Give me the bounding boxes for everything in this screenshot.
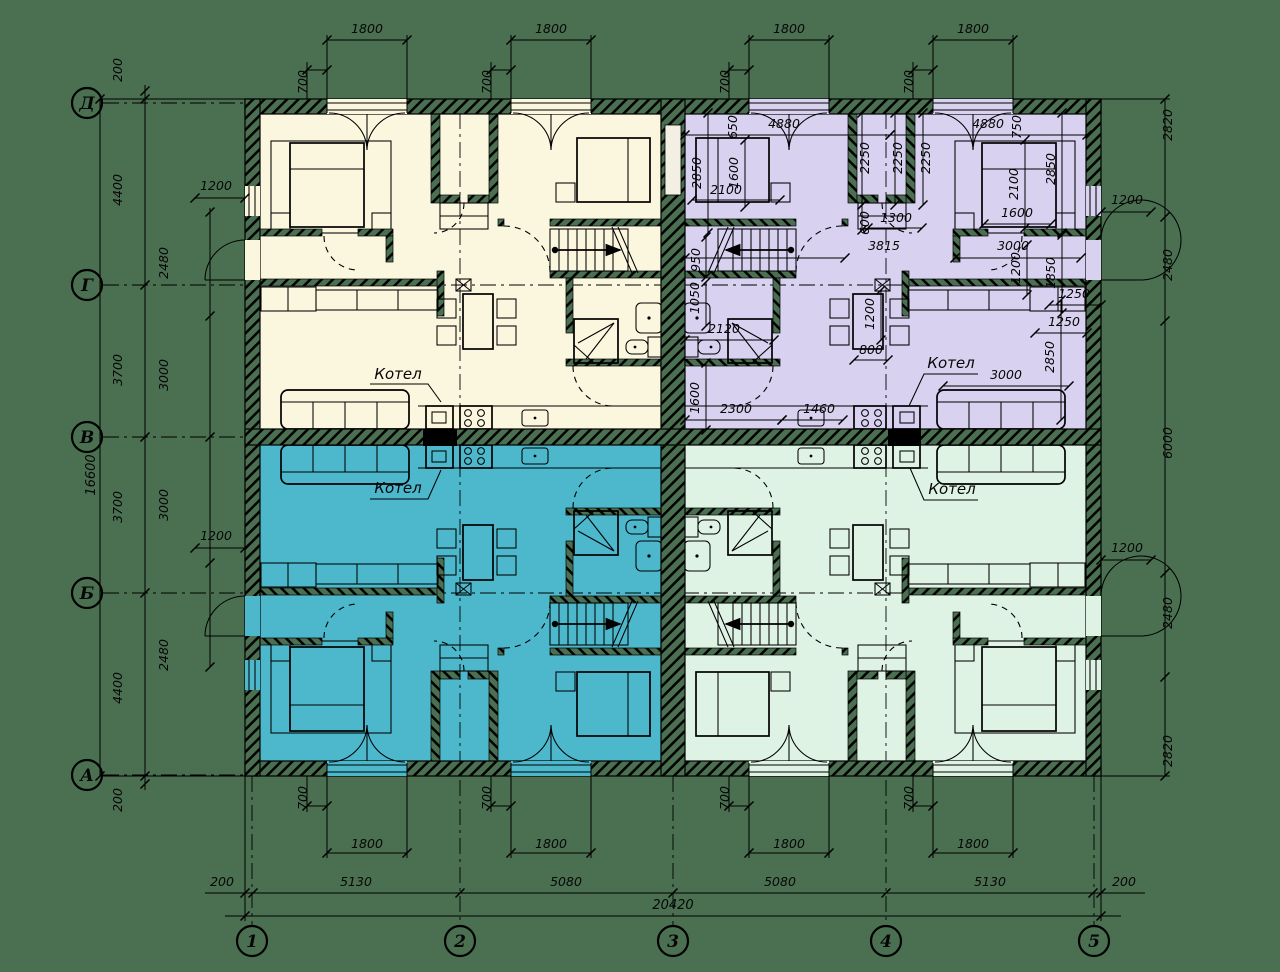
window-opening: [245, 660, 260, 690]
window-opening: [245, 186, 260, 216]
dim-label: 2250: [890, 142, 905, 174]
dim-label: 16600: [84, 454, 99, 495]
door-swing-arc: [205, 240, 245, 280]
dim-label: 1800: [535, 21, 567, 36]
dim-label: 2300: [720, 401, 752, 416]
dim-label: 1200: [200, 528, 232, 543]
chimney-left: [423, 429, 457, 446]
dim-label: 3700: [110, 354, 125, 386]
dim-label: 3000: [997, 238, 1029, 253]
dim-label: 2820: [1160, 735, 1175, 767]
dim-label: 3000: [156, 489, 171, 521]
dim-label: 4400: [110, 672, 125, 704]
window-opening: [933, 761, 1013, 776]
dim-label: 200: [1112, 874, 1136, 889]
door-opening: [245, 240, 260, 280]
dim-label: 950: [688, 248, 703, 272]
dim-label: 2480: [156, 639, 171, 671]
boiler-label: Котел: [927, 354, 975, 372]
center-wall: [245, 429, 1101, 445]
window-opening: [749, 761, 829, 776]
dim-label: 2100: [710, 182, 742, 197]
dim-label: 700: [295, 70, 310, 94]
boiler-label: Котел: [928, 480, 976, 498]
axis-col-label: 5: [1088, 932, 1100, 952]
dim-label: 650: [725, 115, 740, 139]
window-opening: [933, 99, 1013, 114]
dim-label: 700: [901, 70, 916, 94]
axis-row-label: Г: [80, 276, 94, 296]
window-opening: [327, 99, 407, 114]
dim-label: 3000: [990, 367, 1022, 382]
dim-label: 2850: [1043, 153, 1058, 185]
boiler-label: Котел: [374, 365, 422, 383]
dim-label: 1600: [1001, 205, 1033, 220]
dim-label: 3815: [868, 238, 900, 253]
axis-col-label: 3: [667, 932, 679, 952]
dim-label: 5080: [764, 874, 796, 889]
door-swing-arc: [205, 596, 245, 636]
axis-col-label: 2: [453, 932, 466, 952]
dim-label: 1300: [880, 210, 912, 225]
dim-label: 1800: [773, 21, 805, 36]
dim-label: 2820: [1160, 109, 1175, 141]
dim-label: 1200: [862, 298, 877, 330]
door-opening: [1086, 596, 1101, 636]
axis-col-label: 1: [246, 932, 258, 952]
boiler-label: Котел: [374, 479, 422, 497]
dim-label: 2480: [1160, 249, 1175, 281]
dim-label: 20420: [652, 898, 693, 913]
dim-label: 200: [210, 874, 234, 889]
axis-row-label: Д: [78, 94, 95, 114]
dim-label: 3000: [156, 359, 171, 391]
window-opening: [1086, 186, 1101, 216]
dim-label: 1200: [200, 178, 232, 193]
dim-label: 1460: [803, 401, 835, 416]
dim-label: 1800: [351, 836, 383, 851]
dim-label: 1250: [1048, 314, 1080, 329]
dim-label: 600: [857, 211, 872, 235]
dim-label: 1800: [351, 21, 383, 36]
axis-row-label: В: [79, 428, 94, 448]
dim-label: 2480: [156, 247, 171, 279]
dim-label: 4400: [110, 174, 125, 206]
window-opening: [327, 761, 407, 776]
door-opening: [245, 596, 260, 636]
dim-label: 5130: [974, 874, 1006, 889]
dim-label: 700: [479, 70, 494, 94]
party-wall-shaft: [665, 125, 681, 195]
floor-plan-canvas: 1800180018001800700700700700700700700700…: [0, 0, 1280, 972]
dim-label: 1250: [1058, 286, 1090, 301]
dim-label: 2250: [918, 142, 933, 174]
dim-label: 2850: [689, 157, 704, 189]
dim-label: 700: [717, 70, 732, 94]
dim-label: 2120: [708, 321, 740, 336]
door-opening: [1086, 240, 1101, 280]
dim-label: 1600: [687, 382, 702, 414]
dim-label: 2250: [857, 142, 872, 174]
dim-label: 1200: [1111, 540, 1143, 555]
dim-label: 5080: [550, 874, 582, 889]
dim-label: 700: [901, 786, 916, 810]
dim-label: 1200: [1111, 192, 1143, 207]
dim-label: 1800: [957, 21, 989, 36]
dim-label: 200: [110, 58, 125, 82]
window-opening: [1086, 660, 1101, 690]
chimney-right: [888, 429, 921, 446]
dim-label: 1200: [1008, 252, 1023, 284]
dim-label: 3700: [110, 491, 125, 523]
axis-row-label: А: [78, 766, 94, 786]
dim-label: 2850: [1042, 341, 1057, 373]
dim-label: 1800: [535, 836, 567, 851]
dim-label: 6000: [1160, 427, 1175, 459]
dim-label: 700: [717, 786, 732, 810]
dim-label: 1800: [957, 836, 989, 851]
dim-label: 750: [1009, 115, 1024, 139]
dim-label: 2100: [1006, 168, 1021, 200]
dim-label: 2480: [1160, 597, 1175, 629]
dim-label: 1850: [1043, 257, 1058, 289]
dim-label: 5130: [340, 874, 372, 889]
axis-col-label: 4: [880, 932, 892, 952]
window-opening: [511, 761, 591, 776]
dim-label: 800: [859, 342, 883, 357]
dim-label: 1800: [773, 836, 805, 851]
dim-label: 4880: [972, 116, 1004, 131]
dim-label: 700: [295, 786, 310, 810]
window-opening: [749, 99, 829, 114]
dim-label: 1050: [687, 282, 702, 314]
dim-label: 4880: [768, 116, 800, 131]
axis-row-label: Б: [79, 584, 95, 604]
window-opening: [511, 99, 591, 114]
dim-label: 200: [110, 788, 125, 812]
dim-label: 700: [479, 786, 494, 810]
